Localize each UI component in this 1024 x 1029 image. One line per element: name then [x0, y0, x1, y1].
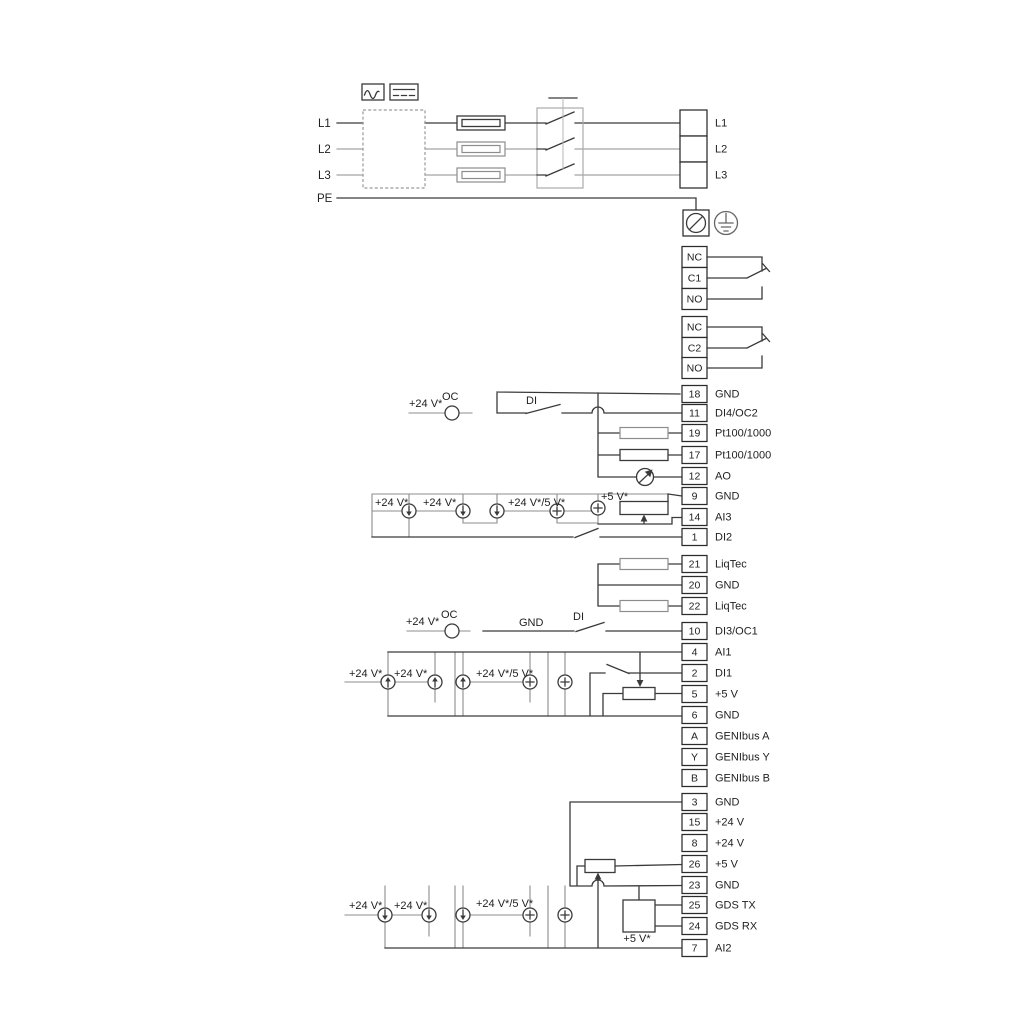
pt100-sensor-icon — [620, 428, 668, 439]
terminal-label: +24 V — [715, 817, 745, 829]
label-di: DI — [526, 395, 537, 407]
label-oc: OC — [441, 609, 458, 621]
terminal-id: C1 — [688, 273, 702, 285]
dc-symbol-icon — [390, 84, 418, 100]
current-source-icon — [456, 675, 470, 689]
relay-2-terminals: NCC2NO — [682, 317, 707, 379]
label-24v: +24 V* — [394, 668, 428, 680]
mains-wire-l2-l3 — [337, 149, 680, 175]
terminal-label: GND — [715, 880, 740, 892]
terminal-id: Y — [691, 752, 698, 764]
terminal-box — [680, 136, 707, 162]
terminal-box — [680, 162, 707, 188]
terminal-label: AI2 — [715, 943, 732, 955]
terminal-label: GND — [715, 710, 740, 722]
terminal-id: 15 — [689, 817, 701, 829]
terminal-id: 19 — [689, 428, 701, 440]
terminal-id: 8 — [692, 838, 698, 850]
label-5v: +5 V* — [623, 933, 651, 945]
terminal-id: 1 — [692, 532, 698, 544]
terminal-label: Pt100/1000 — [715, 428, 771, 440]
terminal-label: L2 — [715, 144, 727, 156]
terminal-id: 4 — [692, 647, 698, 659]
terminal-label: +5 V — [715, 689, 739, 701]
terminal-id: 2 — [692, 668, 698, 680]
phase-label-pe: PE — [317, 193, 333, 205]
label-24v: +24 V* — [406, 616, 440, 628]
pe-screw-terminal-icon — [683, 210, 709, 236]
terminal-label: DI1 — [715, 668, 732, 680]
current-source-icon — [456, 908, 470, 922]
fuse-icon — [457, 168, 505, 182]
relay-2-contact — [707, 327, 770, 368]
liqtec-wiring — [598, 559, 682, 612]
label-24v: +24 V* — [349, 900, 383, 912]
voltage-source-icon — [523, 908, 537, 922]
terminal-label: DI2 — [715, 532, 732, 544]
terminal-id: NC — [687, 322, 703, 334]
terminal-label: GENIbus A — [715, 731, 770, 743]
label-24v: +24 V* — [375, 497, 409, 509]
terminal-label: Pt100/1000 — [715, 450, 771, 462]
terminal-id: 22 — [689, 601, 701, 613]
pt100-sensor-icon — [620, 450, 668, 461]
terminal-id: 26 — [689, 859, 701, 871]
terminal-id: 20 — [689, 580, 701, 592]
terminal-group-lower: 3GND15+24 V8+24 V26+5 V23GND25GDS TX24GD… — [682, 794, 758, 957]
terminal-label: DI4/OC2 — [715, 408, 758, 420]
terminal-id: NO — [687, 363, 703, 375]
terminal-label: AO — [715, 471, 731, 483]
terminal-id: 12 — [689, 471, 701, 483]
label-24v: +24 V* — [409, 398, 443, 410]
phase-label-l2: L2 — [318, 144, 331, 156]
terminal-id: C2 — [688, 343, 702, 355]
terminal-label: GND — [715, 491, 740, 503]
relay-1-terminals: NCC1NO — [682, 247, 707, 310]
label-5v: +5 V* — [601, 491, 629, 503]
potentiometer-icon — [585, 860, 615, 873]
label-di: DI — [573, 611, 584, 623]
ac-waveform-icon — [362, 84, 384, 100]
terminal-box — [680, 110, 707, 136]
terminal-id: 14 — [689, 512, 701, 524]
voltage-source-icon — [558, 675, 572, 689]
terminal-label: LiqTec — [715, 559, 747, 571]
terminal-label: L1 — [715, 118, 727, 130]
terminal-id: 3 — [692, 797, 698, 809]
wiring-diagram: L1 L2 L3 PE — [0, 0, 1024, 1024]
terminal-id: NO — [687, 294, 703, 306]
terminal-id: 18 — [689, 389, 701, 401]
terminal-id: 25 — [689, 900, 701, 912]
terminal-label: GND — [715, 580, 740, 592]
terminal-label: +24 V — [715, 838, 745, 850]
terminal-group-middle: 10DI3/OC14AI12DI15+5 V6GNDAGENIbus AYGEN… — [682, 623, 770, 787]
label-24v: +24 V* — [349, 668, 383, 680]
analog-output-meter-icon — [637, 469, 654, 486]
terminal-label: AI3 — [715, 512, 732, 524]
terminal-id: 21 — [689, 559, 701, 571]
open-collector-icon — [445, 624, 459, 638]
terminal-id: A — [691, 731, 698, 743]
fuse-icon — [457, 142, 505, 156]
potentiometer-icon — [620, 502, 668, 515]
wiper-arrow-icon — [595, 873, 602, 880]
terminal-label: GDS TX — [715, 900, 756, 912]
label-gnd: GND — [519, 617, 544, 629]
mains-wire-l1 — [337, 123, 696, 210]
io-lower-wiring — [345, 802, 682, 948]
label-24v-5v: +24 V*/5 V* — [508, 497, 566, 509]
terminal-label: +5 V — [715, 859, 739, 871]
fuse-icon — [457, 116, 505, 130]
current-source-icon — [428, 675, 442, 689]
phase-label-l1: L1 — [318, 118, 331, 130]
terminal-label: LiqTec — [715, 601, 747, 613]
current-source-icon — [456, 504, 470, 518]
gds-sensor-module — [623, 900, 655, 932]
terminal-group-upper: 18GND11DI4/OC219Pt100/100017Pt100/100012… — [682, 386, 771, 546]
wiper-arrow-icon — [641, 515, 648, 522]
terminal-label: GENIbus B — [715, 773, 770, 785]
terminal-label: GND — [715, 797, 740, 809]
terminal-id: 17 — [689, 450, 701, 462]
label-24v-5v: +24 V*/5 V* — [476, 898, 534, 910]
terminal-group-liqtec: 21LiqTec20GND22LiqTec — [682, 556, 747, 615]
liqtec-sensor-icon — [620, 559, 668, 570]
label-24v: +24 V* — [423, 497, 457, 509]
earth-ground-icon — [715, 212, 738, 235]
current-source-icon — [490, 504, 504, 518]
mains-terminal-block: L1L2L3 — [680, 110, 727, 188]
terminal-label: AI1 — [715, 647, 732, 659]
emc-filter-box — [363, 110, 425, 188]
terminal-id: 7 — [692, 943, 698, 955]
liqtec-sensor-icon — [620, 601, 668, 612]
potentiometer-icon — [623, 688, 655, 700]
terminal-label: GENIbus Y — [715, 752, 770, 764]
terminal-id: 23 — [689, 880, 701, 892]
source-symbols — [378, 406, 605, 922]
terminal-id: 24 — [689, 921, 701, 933]
wiring-diagram-page: L1 L2 L3 PE — [0, 0, 1024, 1024]
label-24v: +24 V* — [394, 900, 428, 912]
voltage-source-icon — [558, 908, 572, 922]
terminal-id: B — [691, 773, 698, 785]
label-oc: OC — [442, 391, 459, 403]
phase-label-l3: L3 — [318, 170, 331, 182]
terminal-label: DI3/OC1 — [715, 626, 758, 638]
voltage-source-icon — [591, 501, 605, 515]
terminal-label: L3 — [715, 170, 727, 182]
terminal-id: 5 — [692, 689, 698, 701]
terminal-label: GDS RX — [715, 921, 758, 933]
terminal-id: 6 — [692, 710, 698, 722]
open-collector-icon — [445, 406, 459, 420]
terminal-id: 11 — [689, 408, 700, 420]
terminal-id: 9 — [692, 491, 698, 503]
current-source-icon — [381, 675, 395, 689]
relay-1-contact — [707, 257, 770, 299]
mains-input-section: L1 L2 L3 PE — [317, 84, 738, 236]
terminal-label: GND — [715, 389, 740, 401]
terminal-id: 10 — [689, 626, 701, 638]
wiper-arrow-icon — [637, 680, 644, 687]
label-24v-5v: +24 V*/5 V* — [476, 668, 534, 680]
terminal-id: NC — [687, 252, 703, 264]
